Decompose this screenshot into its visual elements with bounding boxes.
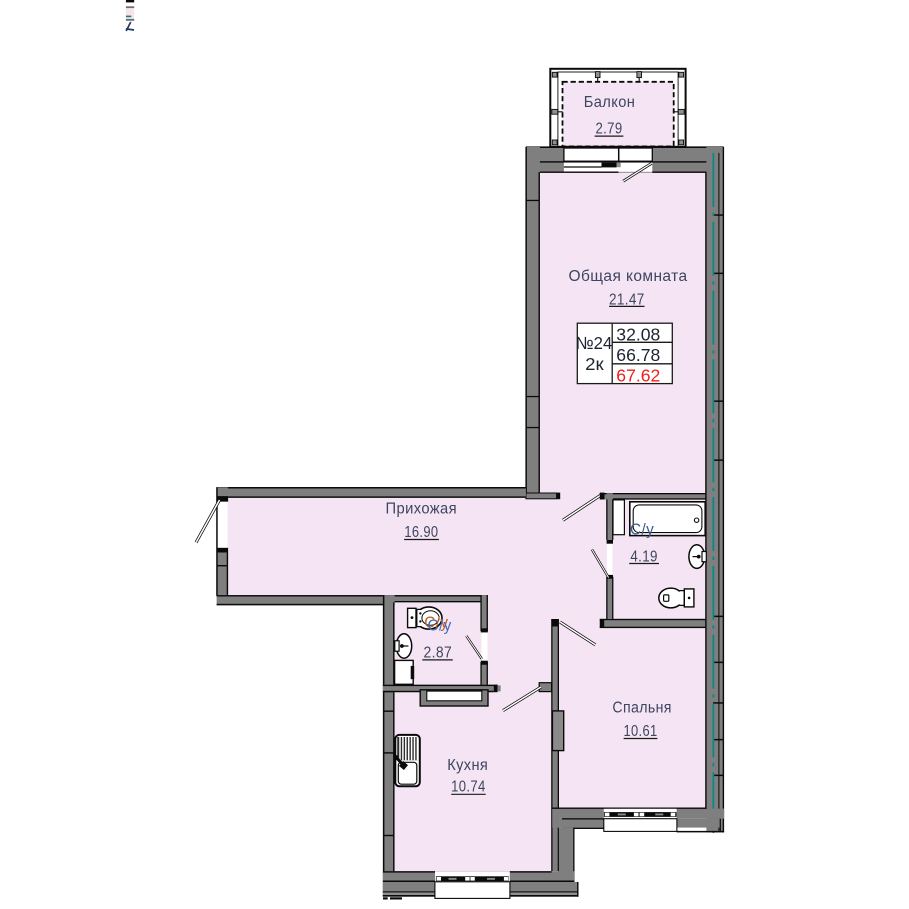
svg-text:32.08: 32.08 [616,325,660,345]
svg-text:Кухня: Кухня [447,757,488,774]
svg-text:Спальня: Спальня [612,699,672,716]
svg-text:Прихожая: Прихожая [386,501,458,518]
svg-text:21.47: 21.47 [609,291,645,308]
svg-text:Общая комната: Общая комната [569,268,688,285]
svg-text:№24: №24 [576,333,613,353]
svg-text:2к: 2к [585,354,604,374]
svg-text:16.90: 16.90 [404,524,438,541]
svg-text:С/у: С/у [428,618,452,635]
svg-text:4.19: 4.19 [630,548,658,565]
svg-text:2.79: 2.79 [596,121,623,138]
svg-text:2.87: 2.87 [424,644,453,661]
svg-text:67.62: 67.62 [616,366,660,386]
svg-text:10.61: 10.61 [624,723,658,740]
svg-text:С/у: С/у [630,522,654,539]
svg-text:66.78: 66.78 [616,345,660,365]
svg-text:Балкон: Балкон [584,94,636,111]
svg-text:10.74: 10.74 [451,779,486,796]
